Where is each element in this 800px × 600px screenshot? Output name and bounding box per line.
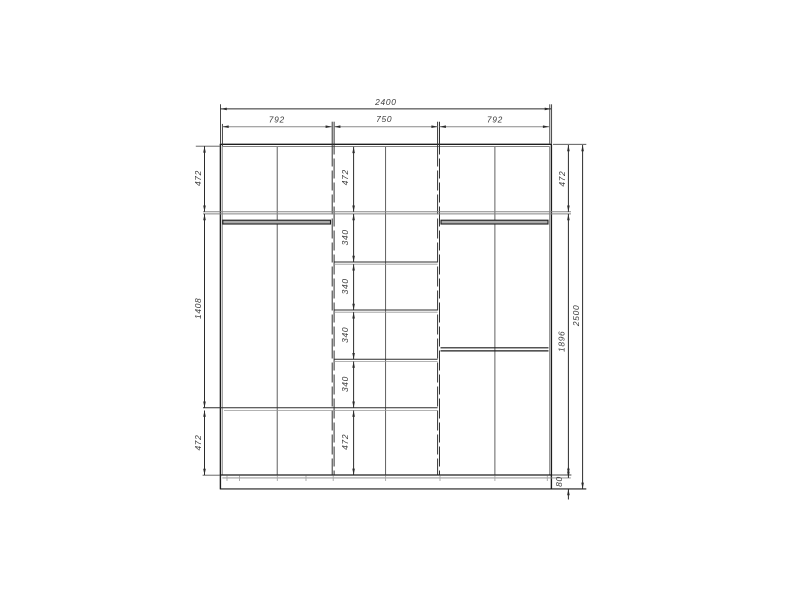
svg-text:2500: 2500 <box>571 305 581 327</box>
svg-text:340: 340 <box>340 229 350 245</box>
svg-text:472: 472 <box>557 171 567 187</box>
svg-text:80: 80 <box>554 476 564 487</box>
svg-text:472: 472 <box>193 170 203 186</box>
svg-text:2400: 2400 <box>374 97 396 107</box>
svg-text:340: 340 <box>340 327 350 343</box>
svg-text:792: 792 <box>487 114 503 124</box>
svg-text:472: 472 <box>340 169 350 185</box>
svg-text:340: 340 <box>340 278 350 294</box>
svg-text:750: 750 <box>376 114 392 124</box>
svg-text:792: 792 <box>269 115 285 125</box>
svg-text:1896: 1896 <box>557 331 567 352</box>
svg-text:472: 472 <box>340 434 350 450</box>
svg-text:472: 472 <box>193 434 203 450</box>
svg-text:340: 340 <box>340 376 350 392</box>
svg-text:1408: 1408 <box>193 298 203 319</box>
